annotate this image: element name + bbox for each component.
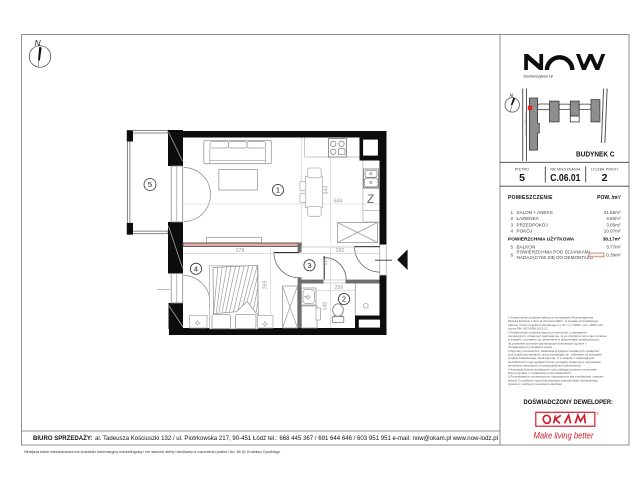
svg-text:POW. /m²/: POW. /m²/ xyxy=(597,195,621,201)
svg-text:115: 115 xyxy=(323,257,329,265)
svg-text:Niniejsza karta mieszkaniowa m: Niniejsza karta mieszkaniowa ma charakte… xyxy=(24,450,281,454)
svg-text:5: 5 xyxy=(519,172,525,184)
svg-text:2: 2 xyxy=(342,295,346,304)
svg-text:POMIESZCZENIE: POMIESZCZENIE xyxy=(508,195,553,201)
svg-text:3: 3 xyxy=(307,261,311,270)
svg-text:DOŚWIADCZONY DEWELOPER:: DOŚWIADCZONY DEWELOPER: xyxy=(524,399,614,406)
svg-text:PIĘTRO: PIĘTRO xyxy=(515,167,529,171)
svg-text:NR MIESZKANIA: NR MIESZKANIA xyxy=(550,167,581,171)
svg-text:38.17m²: 38.17m² xyxy=(603,237,621,243)
svg-text:4: 4 xyxy=(510,229,513,234)
svg-text:LICZBA POKOI: LICZBA POKOI xyxy=(591,167,618,171)
svg-text:BALKON: BALKON xyxy=(517,244,536,249)
svg-text:UL. DOWBORCZYKÓW: UL. DOWBORCZYKÓW xyxy=(524,112,527,137)
svg-text:3.77m²: 3.77m² xyxy=(606,244,621,249)
svg-text:5: 5 xyxy=(510,244,513,249)
svg-text:3: 3 xyxy=(510,222,513,227)
svg-text:BIURO SPRZEDAŻY:: BIURO SPRZEDAŻY: xyxy=(33,435,93,442)
svg-text:149: 149 xyxy=(323,302,329,311)
svg-text:6: 6 xyxy=(510,253,513,258)
svg-text:0.39m²: 0.39m² xyxy=(606,253,621,258)
svg-text:POWIERZCHNIA POD ŚCIANKAMI: POWIERZCHNIA POD ŚCIANKAMI xyxy=(517,248,590,255)
svg-text:256: 256 xyxy=(335,285,344,291)
svg-text:NADAJĄCYMI SIĘ DO DEMONTAŻU: NADAJĄCYMI SIĘ DO DEMONTAŻU xyxy=(517,254,593,260)
svg-text:378: 378 xyxy=(236,248,245,254)
svg-text:2: 2 xyxy=(602,172,608,184)
svg-text:4: 4 xyxy=(194,264,198,273)
svg-text:POKÓJ: POKÓJ xyxy=(517,228,533,234)
svg-text:zgodnie z możliwymi sposobami: zgodnie z możliwymi sposobami aranżacji. xyxy=(508,382,563,386)
svg-text:BUDYNEK C: BUDYNEK C xyxy=(576,150,615,159)
svg-text:N: N xyxy=(510,94,514,100)
svg-text:1: 1 xyxy=(276,186,280,195)
svg-text:PRZEDPOKÓJ: PRZEDPOKÓJ xyxy=(517,221,548,227)
svg-text:al. Tadeusza Kościuszki 132 /: al. Tadeusza Kościuszki 132 / ul. Piotrk… xyxy=(95,436,498,442)
svg-text:2: 2 xyxy=(510,216,513,221)
svg-text:269: 269 xyxy=(263,281,269,290)
svg-text:C.06.01: C.06.01 xyxy=(550,172,581,184)
svg-text:3.50m²: 3.50m² xyxy=(606,216,621,221)
svg-text:SALON + ANEKS: SALON + ANEKS xyxy=(517,210,553,215)
svg-text:Make living better: Make living better xyxy=(534,430,595,440)
svg-text:Dowborczyków 18: Dowborczyków 18 xyxy=(524,75,553,79)
svg-text:260: 260 xyxy=(336,248,345,254)
svg-text:Z: Z xyxy=(367,192,374,206)
svg-text:POWIERZCHNIA UŻYTKOWA: POWIERZCHNIA UŻYTKOWA xyxy=(508,236,575,243)
svg-text:646: 646 xyxy=(334,198,343,204)
svg-text:343: 343 xyxy=(324,186,330,195)
svg-text:10.07m²: 10.07m² xyxy=(604,229,621,234)
svg-text:ŁAZIENKA: ŁAZIENKA xyxy=(517,216,540,221)
svg-text:21.55m²: 21.55m² xyxy=(604,210,621,215)
svg-text:1: 1 xyxy=(510,210,513,215)
svg-text:3.05m²: 3.05m² xyxy=(606,222,621,227)
svg-text:5: 5 xyxy=(148,180,152,189)
